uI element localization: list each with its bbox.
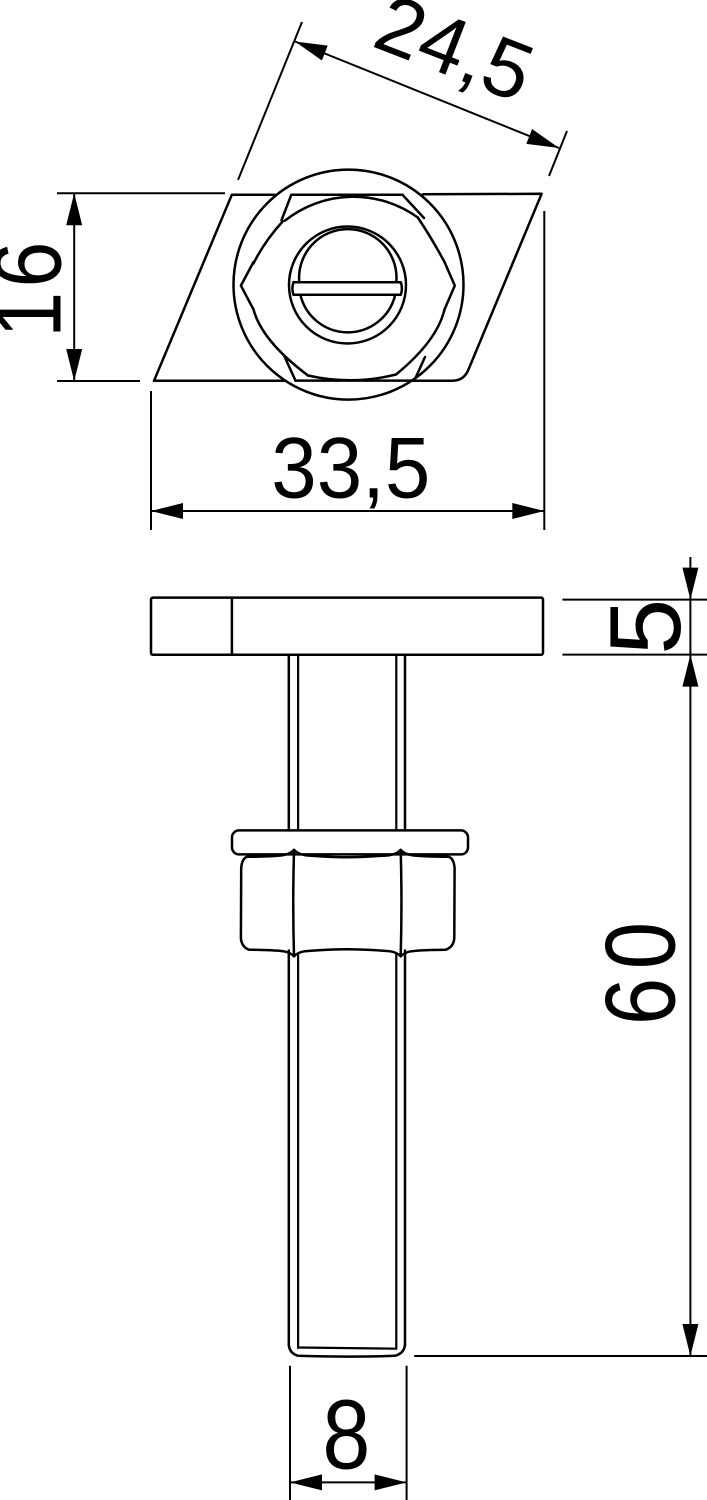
svg-text:24,5: 24,5 [363,0,545,120]
svg-text:33,5: 33,5 [271,419,430,515]
svg-text:5: 5 [590,599,702,655]
svg-text:60: 60 [584,913,696,1025]
svg-text:16: 16 [0,237,81,337]
svg-text:8: 8 [322,1379,370,1489]
